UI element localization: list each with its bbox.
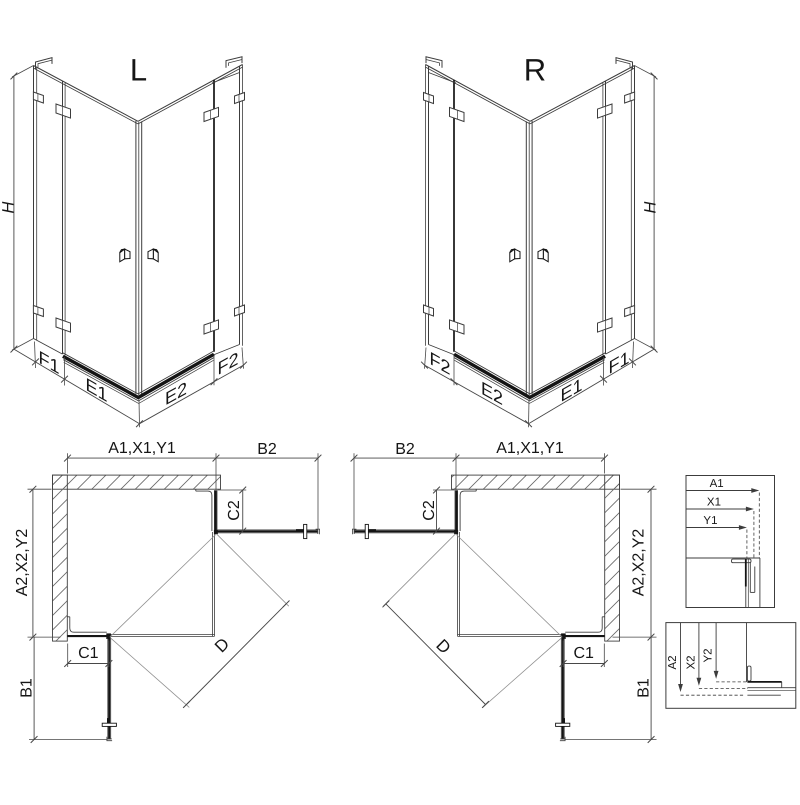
- svg-text:H: H: [0, 201, 17, 213]
- svg-text:L: L: [130, 53, 147, 88]
- svg-text:B2: B2: [395, 441, 415, 458]
- svg-text:B1: B1: [635, 678, 652, 698]
- svg-text:A1,X1,Y1: A1,X1,Y1: [496, 440, 564, 457]
- svg-text:C1: C1: [78, 645, 99, 662]
- svg-text:C2: C2: [226, 500, 243, 521]
- svg-text:B1: B1: [18, 678, 35, 698]
- svg-text:A1: A1: [710, 478, 724, 490]
- svg-text:C2: C2: [421, 500, 438, 521]
- svg-text:X2: X2: [685, 655, 697, 669]
- svg-text:A2: A2: [667, 655, 679, 669]
- svg-text:B2: B2: [257, 441, 277, 458]
- svg-text:A2,X2,Y2: A2,X2,Y2: [631, 529, 648, 597]
- svg-text:H: H: [641, 201, 659, 213]
- svg-text:C1: C1: [573, 645, 594, 662]
- svg-text:Y2: Y2: [703, 648, 715, 662]
- svg-text:Y1: Y1: [703, 515, 717, 527]
- svg-text:A1,X1,Y1: A1,X1,Y1: [108, 440, 176, 457]
- svg-text:X1: X1: [707, 497, 721, 509]
- svg-text:A2,X2,Y2: A2,X2,Y2: [14, 529, 31, 597]
- svg-text:R: R: [524, 53, 546, 88]
